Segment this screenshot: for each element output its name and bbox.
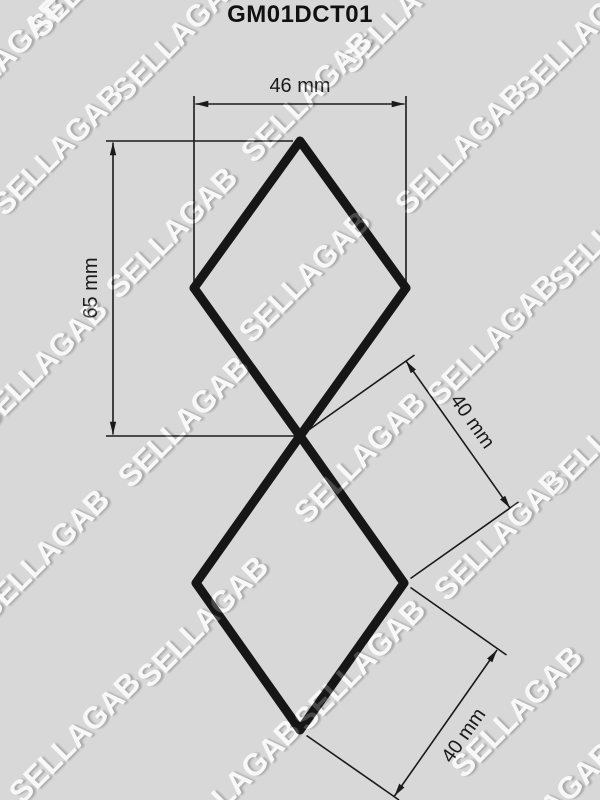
dimension-label-46mm: 46 mm (269, 75, 330, 97)
technical-drawing: 46 mm 65 mm 40 mm 40 mm (0, 0, 600, 800)
extension-line (307, 736, 400, 800)
extension-line (411, 502, 519, 579)
extension-line (411, 588, 507, 656)
dimension-label-65mm: 65 mm (80, 257, 102, 318)
lower-diamond-outline (196, 436, 404, 730)
dimension-label-40mm-upper: 40 mm (446, 390, 499, 453)
extension-line (307, 355, 415, 432)
dimension-label-40mm-lower: 40 mm (437, 704, 490, 767)
drawing-canvas: SELLAGABSELLAGABSELLAGABSELLAGABSELLAGAB… (0, 0, 600, 800)
dimension-lower-right-edge (307, 588, 507, 800)
dimension-top-width (194, 96, 406, 282)
upper-diamond-outline (194, 141, 406, 436)
page-title: GM01DCT01 (0, 1, 600, 29)
